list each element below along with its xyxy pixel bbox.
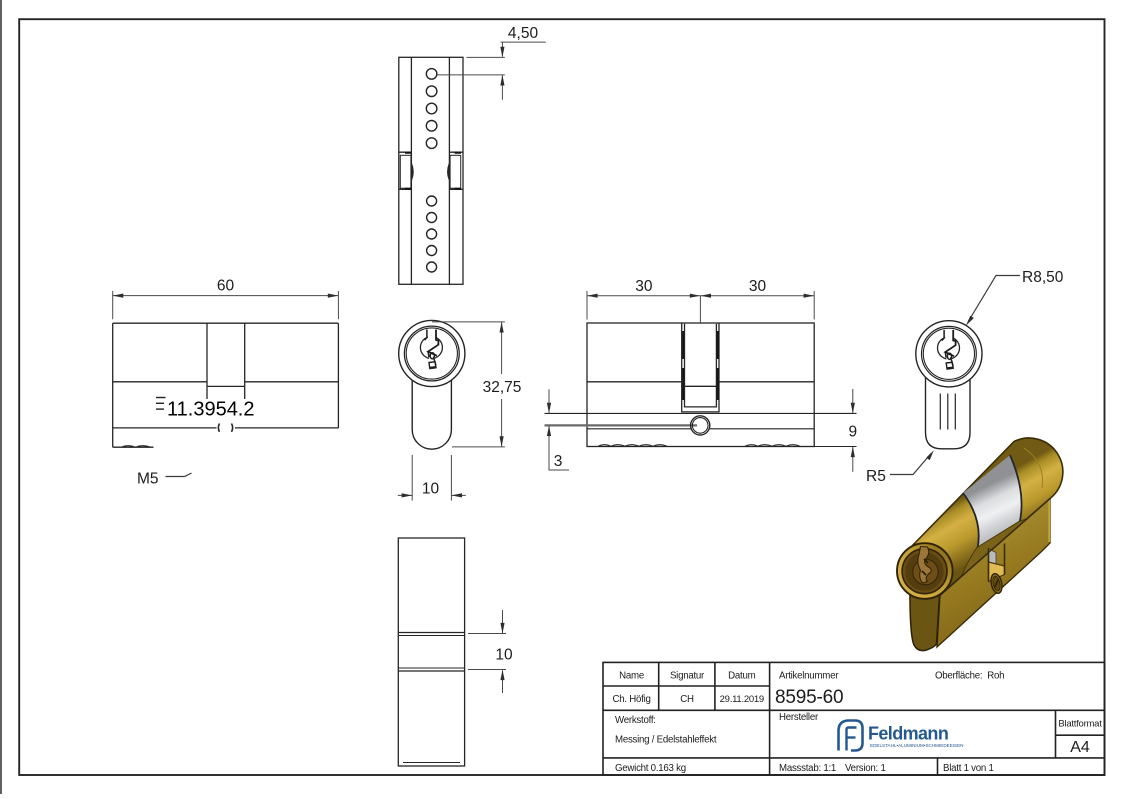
svg-text:CH: CH [680,694,694,705]
svg-text:R8,50: R8,50 [1022,269,1064,286]
svg-text:Datum: Datum [728,671,755,682]
svg-text:10: 10 [495,647,513,664]
svg-text:30: 30 [635,278,653,295]
svg-text:Feldmann: Feldmann [868,724,948,744]
svg-text:4,50: 4,50 [508,25,539,42]
svg-text:3: 3 [554,453,563,470]
svg-text:32,75: 32,75 [483,379,522,396]
svg-text:Gewicht 0.163 kg: Gewicht 0.163 kg [615,763,686,774]
svg-text:Hersteller: Hersteller [779,712,819,723]
svg-text:M5: M5 [137,471,159,488]
svg-text:EDELSTAHL•ALUMINIUM•SCHMIEDEEI: EDELSTAHL•ALUMINIUM•SCHMIEDEEISEN [870,743,964,748]
svg-text:A4: A4 [1070,739,1090,756]
svg-text:60: 60 [217,278,235,295]
svg-text:Name: Name [619,671,644,682]
svg-text:Artikelnummer: Artikelnummer [779,671,839,682]
svg-text:Blatt 1 von 1: Blatt 1 von 1 [943,763,994,774]
svg-text:Blattformat: Blattformat [1058,719,1102,730]
svg-text:Massstab: 1:1: Massstab: 1:1 [779,763,836,774]
svg-text:11.3954.2: 11.3954.2 [167,399,255,421]
svg-text:29.11.2019: 29.11.2019 [720,694,764,705]
svg-text:Messing / Edelstahleffekt: Messing / Edelstahleffekt [615,735,717,746]
svg-text:Werkstoff:: Werkstoff: [615,715,656,726]
svg-text:9: 9 [848,424,857,441]
svg-text:Version: 1: Version: 1 [845,763,886,774]
svg-text:10: 10 [422,481,440,498]
svg-text:8595-60: 8595-60 [775,687,843,708]
svg-text:Signatur: Signatur [670,671,705,682]
svg-text:R5: R5 [866,468,886,485]
svg-text:Ch. Höfig: Ch. Höfig [613,694,651,705]
svg-text:Oberfläche: Roh: Oberfläche: Roh [935,671,1004,682]
svg-text:30: 30 [749,278,767,295]
